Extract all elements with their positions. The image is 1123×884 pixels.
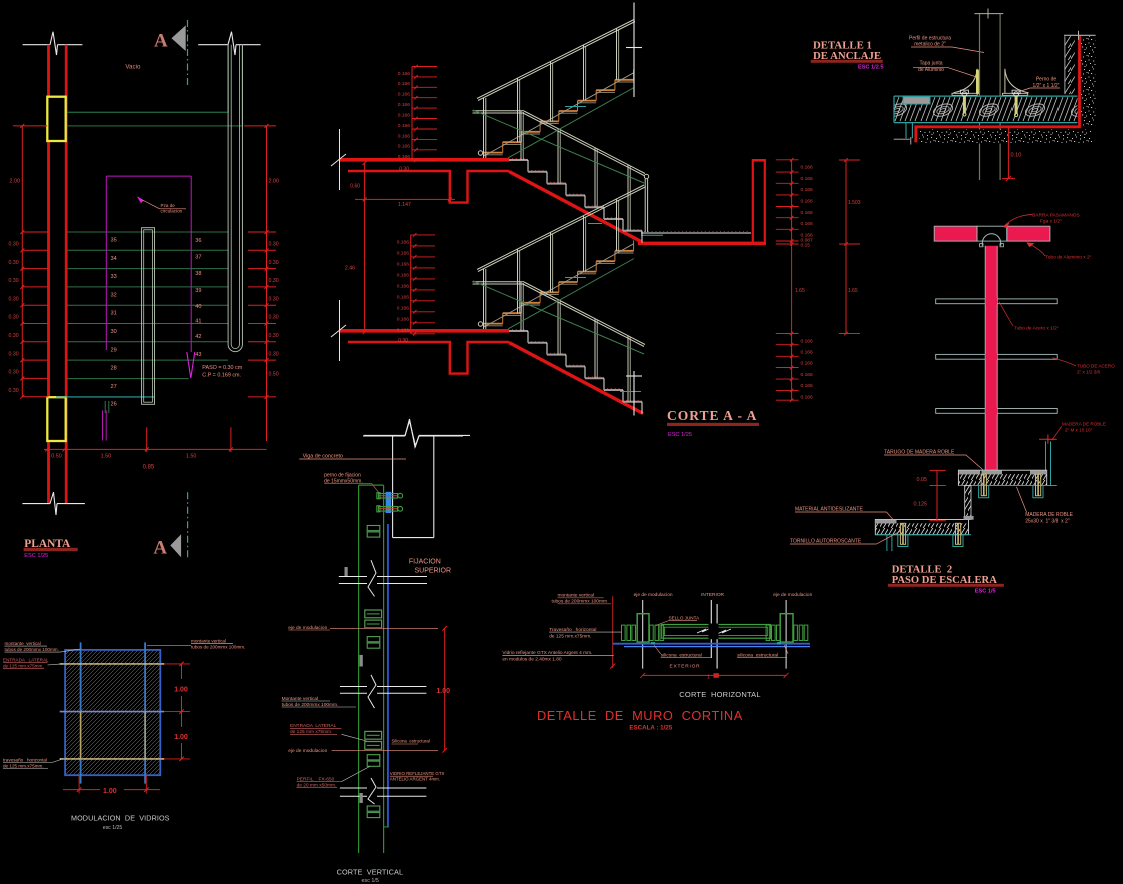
svg-text:0.166: 0.166 — [398, 102, 411, 108]
svg-text:1.00: 1.00 — [103, 788, 117, 795]
svg-text:0.166: 0.166 — [398, 154, 411, 160]
svg-text:32: 32 — [111, 292, 117, 298]
svg-text:0.30: 0.30 — [9, 315, 19, 321]
svg-text:CORTE VERTICAL: CORTE VERTICAL — [337, 868, 404, 877]
svg-text:circulacion: circulacion — [161, 209, 183, 214]
svg-text:34: 34 — [111, 256, 117, 262]
svg-text:Perno de: Perno de — [1036, 77, 1057, 83]
svg-text:tubos de 200mmx 100mm.: tubos de 200mmx 100mm. — [191, 645, 245, 650]
svg-text:26: 26 — [111, 402, 117, 408]
svg-text:de 125 mm.x75mm.: de 125 mm.x75mm. — [549, 633, 591, 639]
svg-text:0.166: 0.166 — [397, 328, 410, 334]
svg-text:0.166: 0.166 — [801, 176, 814, 182]
svg-text:0.166: 0.166 — [801, 350, 814, 356]
svg-text:0.30: 0.30 — [269, 351, 279, 357]
svg-text:0.30: 0.30 — [398, 338, 408, 344]
svg-text:31: 31 — [111, 311, 117, 317]
svg-text:en modulos de 2.40mx 1.80: en modulos de 2.40mx 1.80 — [502, 657, 562, 663]
svg-text:Pza de: Pza de — [161, 203, 176, 208]
svg-text:DETALLE 2: DETALLE 2 — [892, 565, 952, 576]
svg-text:MADERA DE ROBLE: MADERA DE ROBLE — [1025, 512, 1073, 518]
svg-text:0.10: 0.10 — [1011, 153, 1022, 159]
svg-text:2.00: 2.00 — [10, 178, 21, 184]
svg-text:0.30: 0.30 — [9, 296, 19, 302]
svg-text:CORTE HORIZONTAL: CORTE HORIZONTAL — [679, 690, 760, 699]
svg-text:0.125: 0.125 — [914, 502, 928, 508]
svg-text:0.30: 0.30 — [269, 296, 279, 302]
svg-text:0.30: 0.30 — [269, 242, 279, 248]
svg-text:de 125 mm.x75mm.: de 125 mm.x75mm. — [3, 663, 44, 668]
svg-text:1.147: 1.147 — [398, 202, 411, 208]
svg-text:0.50: 0.50 — [51, 454, 62, 460]
svg-text:1.00: 1.00 — [174, 687, 188, 694]
svg-text:tubos de 200mmx 100mm.: tubos de 200mmx 100mm. — [5, 647, 59, 652]
svg-text:27: 27 — [111, 384, 117, 390]
svg-text:0.30: 0.30 — [9, 260, 19, 266]
svg-text:ESCALA : 1/25: ESCALA : 1/25 — [629, 725, 672, 732]
svg-text:39: 39 — [195, 288, 201, 294]
svg-text:FIJACION: FIJACION — [409, 559, 441, 566]
svg-text:MODULACION DE VIDRIOS: MODULACION DE VIDRIOS — [71, 814, 170, 823]
svg-text:A: A — [154, 31, 168, 52]
svg-text:0.30: 0.30 — [269, 315, 279, 321]
svg-text:INTERIOR: INTERIOR — [701, 592, 724, 598]
svg-text:0.166: 0.166 — [398, 81, 411, 87]
svg-text:0.30: 0.30 — [269, 333, 279, 339]
svg-text:Fga x 1/2″: Fga x 1/2″ — [1040, 219, 1062, 225]
svg-text:eje de modulacion: eje de modulacion — [288, 748, 327, 754]
svg-text:1.65: 1.65 — [795, 288, 805, 294]
svg-text:0.05: 0.05 — [917, 477, 928, 483]
svg-text:TUBO DE ACERO: TUBO DE ACERO — [1077, 363, 1115, 368]
svg-text:0.30: 0.30 — [9, 242, 19, 248]
svg-text:A: A — [153, 538, 167, 559]
svg-text:0.166: 0.166 — [801, 372, 814, 378]
svg-text:1.50: 1.50 — [186, 454, 197, 460]
svg-text:MADERA DE ROBLE: MADERA DE ROBLE — [1062, 421, 1106, 426]
svg-text:ANTELIO ARGENT 4mm.: ANTELIO ARGENT 4mm. — [390, 777, 440, 782]
svg-text:ESC 1/25: ESC 1/25 — [668, 432, 692, 438]
svg-text:esc 1/25: esc 1/25 — [103, 825, 123, 831]
svg-text:1.503: 1.503 — [848, 200, 861, 206]
svg-text:Perfil de estructura: Perfil de estructura — [909, 36, 951, 42]
svg-text:0.166: 0.166 — [397, 251, 410, 257]
svg-text:ESC 1/5: ESC 1/5 — [975, 589, 996, 595]
svg-text:0.15: 0.15 — [801, 243, 811, 249]
svg-text:28: 28 — [111, 366, 117, 372]
svg-text:36: 36 — [195, 238, 201, 244]
svg-text:2.46: 2.46 — [345, 266, 355, 272]
svg-text:EXTERIOR: EXTERIOR — [670, 663, 701, 669]
svg-text:PASO = 0.30 cm: PASO = 0.30 cm — [202, 365, 242, 371]
svg-text:0.166: 0.166 — [397, 295, 410, 301]
svg-text:Tapa junta: Tapa junta — [919, 61, 942, 67]
svg-text:0.30: 0.30 — [9, 370, 19, 376]
svg-text:0.166: 0.166 — [398, 112, 411, 118]
svg-text:1: 1 — [707, 674, 710, 680]
svg-text:TORNILLO AUTORROSCANTE: TORNILLO AUTORROSCANTE — [790, 539, 862, 545]
svg-text:CORTE A - A: CORTE A - A — [667, 408, 757, 423]
svg-text:0.50: 0.50 — [269, 372, 279, 378]
svg-text:0.166: 0.166 — [398, 71, 411, 77]
svg-text:0.30: 0.30 — [269, 278, 279, 284]
svg-text:0.166: 0.166 — [398, 92, 411, 98]
svg-text:MATERIAL ANTIDESLIZANTE: MATERIAL ANTIDESLIZANTE — [795, 507, 863, 513]
svg-text:25x30 x 1″ 3/8 x 2″: 25x30 x 1″ 3/8 x 2″ — [1025, 518, 1070, 524]
svg-text:de 125 mm.x75mm.: de 125 mm.x75mm. — [3, 763, 44, 768]
svg-text:SELLO JUNTA: SELLO JUNTA — [669, 615, 700, 620]
svg-text:travesaño horizontal: travesaño horizontal — [3, 757, 47, 762]
svg-text:0.166: 0.166 — [397, 262, 410, 268]
svg-text:2.00: 2.00 — [269, 178, 280, 184]
svg-text:0.166: 0.166 — [801, 187, 814, 193]
svg-text:0.166: 0.166 — [397, 273, 410, 279]
svg-text:1.50: 1.50 — [101, 454, 112, 460]
svg-text:0.166: 0.166 — [801, 361, 814, 367]
svg-text:VIDRIO REFLEJANTE GTX: VIDRIO REFLEJANTE GTX — [390, 771, 445, 776]
svg-text:eje de modulacion: eje de modulacion — [773, 592, 812, 598]
svg-text:40: 40 — [195, 304, 201, 310]
svg-text:montante vertical: montante vertical — [5, 641, 41, 646]
svg-text:38: 38 — [195, 271, 201, 277]
svg-text:0.166: 0.166 — [398, 133, 411, 139]
svg-text:0.30: 0.30 — [9, 351, 19, 357]
svg-text:Vacio: Vacio — [125, 63, 141, 70]
svg-text:eje de modulacion: eje de modulacion — [634, 592, 673, 598]
svg-text:33: 33 — [111, 274, 117, 280]
svg-text:0.60: 0.60 — [350, 184, 360, 190]
svg-text:ESC 1/2.5: ESC 1/2.5 — [858, 65, 884, 71]
svg-text:esc 1/5: esc 1/5 — [362, 878, 379, 884]
svg-text:2″ M x 10.16″: 2″ M x 10.16″ — [1065, 427, 1093, 432]
svg-text:0.166: 0.166 — [397, 317, 410, 323]
svg-text:1.65: 1.65 — [848, 288, 858, 294]
svg-text:0.166: 0.166 — [801, 199, 814, 205]
svg-text:30: 30 — [111, 329, 117, 335]
svg-text:Tubo de Aluminio x 2″: Tubo de Aluminio x 2″ — [1045, 254, 1092, 260]
svg-text:0.166: 0.166 — [801, 394, 814, 400]
svg-text:42: 42 — [195, 334, 201, 340]
svg-text:1.00: 1.00 — [436, 688, 450, 695]
svg-text:0.166: 0.166 — [398, 123, 411, 129]
svg-text:0.166: 0.166 — [801, 165, 814, 171]
svg-text:0.30: 0.30 — [399, 167, 409, 173]
svg-text:1.00: 1.00 — [174, 734, 188, 741]
svg-text:0.85: 0.85 — [143, 465, 155, 471]
svg-text:0.166: 0.166 — [398, 144, 411, 150]
svg-text:37: 37 — [195, 255, 201, 261]
svg-text:de Aluminio: de Aluminio — [918, 67, 944, 73]
svg-text:0.166: 0.166 — [397, 306, 410, 312]
svg-text:DETALLE DE MURO CORTINA: DETALLE DE MURO CORTINA — [537, 708, 743, 723]
svg-text:2″ x 1/2 3/8: 2″ x 1/2 3/8 — [1077, 369, 1101, 374]
svg-text:43: 43 — [195, 352, 201, 358]
svg-text:29: 29 — [111, 347, 117, 353]
svg-text:41: 41 — [195, 319, 201, 325]
svg-text:ESC 1/25: ESC 1/25 — [24, 553, 48, 559]
svg-text:0.166: 0.166 — [801, 221, 814, 227]
svg-text:0.166: 0.166 — [801, 210, 814, 216]
svg-text:Silicona estructural: Silicona estructural — [392, 739, 430, 744]
svg-text:0.30: 0.30 — [9, 333, 19, 339]
svg-text:Tubo de Acero x 1/2″: Tubo de Acero x 1/2″ — [1014, 326, 1059, 332]
svg-text:0.30: 0.30 — [9, 278, 19, 284]
svg-text:Viga de concreto: Viga de concreto — [303, 453, 343, 459]
svg-text:BARRA PASAMANOS: BARRA PASAMANOS — [1032, 213, 1080, 219]
svg-text:0.30: 0.30 — [9, 388, 19, 394]
svg-text:ENTRADA LATERAL: ENTRADA LATERAL — [3, 657, 49, 662]
svg-text:0.166: 0.166 — [801, 383, 814, 389]
svg-text:SUPERIOR: SUPERIOR — [415, 568, 452, 575]
svg-text:C.P = 0.169 cm.: C.P = 0.169 cm. — [202, 373, 241, 379]
svg-text:0.166: 0.166 — [397, 240, 410, 246]
svg-text:montante vertical: montante vertical — [191, 639, 226, 644]
svg-text:0.166: 0.166 — [397, 284, 410, 290]
svg-text:0.166: 0.166 — [801, 338, 814, 344]
svg-text:35: 35 — [111, 238, 117, 244]
svg-text:0.30: 0.30 — [269, 260, 279, 266]
